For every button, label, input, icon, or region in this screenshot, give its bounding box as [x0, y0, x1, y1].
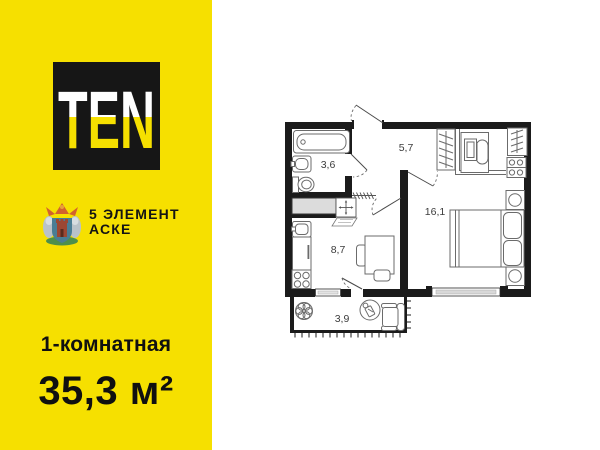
bathroom-door	[351, 154, 367, 177]
plant-icon	[296, 303, 313, 320]
vent-shaft-icon	[332, 198, 357, 226]
room-label-bedroom: 16,1	[425, 206, 446, 218]
armchair-icon	[382, 304, 405, 331]
kitchen-table-icon	[357, 236, 395, 281]
kitchen-sink-icon	[292, 222, 312, 238]
bedroom-shelf-icon	[508, 128, 528, 156]
bathtub-icon	[294, 131, 350, 154]
bed-icon	[450, 210, 524, 267]
hall-closet	[292, 198, 336, 214]
balcony-table-icon	[360, 300, 380, 320]
desk-icon	[461, 133, 489, 173]
kitchen-counter	[293, 237, 312, 270]
dresser-icon	[507, 158, 526, 178]
bedroom-window	[432, 288, 500, 296]
room-label-hallway: 5,7	[399, 142, 414, 154]
bedroom-door	[408, 172, 438, 187]
kitchen-window	[316, 289, 341, 296]
stove-icon	[292, 270, 311, 289]
listing-card: TEN 5 ЭЛЕМЕНТ	[0, 0, 600, 450]
toilet-icon	[293, 177, 315, 193]
room-label-balcony: 3,9	[335, 313, 350, 325]
nightstand-icon	[506, 191, 525, 210]
entrance-door	[351, 105, 383, 123]
room-label-kitchen: 8,7	[331, 244, 346, 256]
bathroom-sink-icon	[291, 156, 311, 172]
floor-plan: 3,6 5,7 16,1 8,7 3,9	[0, 0, 600, 450]
nightstand-icon	[506, 267, 525, 286]
kitchen-door	[372, 198, 401, 215]
balcony-door	[342, 278, 362, 289]
room-label-bathroom: 3,6	[321, 159, 336, 171]
